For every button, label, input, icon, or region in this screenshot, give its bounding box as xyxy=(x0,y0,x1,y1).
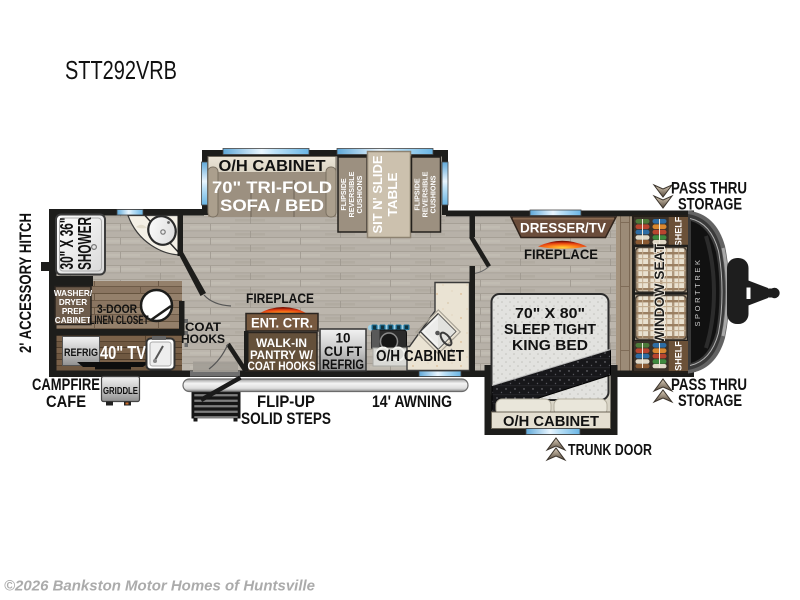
svg-text:CUSHIONS: CUSHIONS xyxy=(355,175,364,213)
svg-text:SOLID STEPS: SOLID STEPS xyxy=(241,410,331,428)
svg-text:DRESSER/TV: DRESSER/TV xyxy=(520,220,607,236)
svg-text:SPORTTREK: SPORTTREK xyxy=(693,257,702,326)
svg-text:SHELF: SHELF xyxy=(674,341,684,371)
svg-text:SHOWER: SHOWER xyxy=(74,217,95,270)
svg-text:TABLE: TABLE xyxy=(385,172,400,216)
svg-text:LINEN CLOSET: LINEN CLOSET xyxy=(90,315,149,327)
svg-text:CAFE: CAFE xyxy=(46,393,86,411)
svg-text:SOFA / BED: SOFA / BED xyxy=(220,196,324,215)
svg-text:TRUNK DOOR: TRUNK DOOR xyxy=(568,442,652,459)
svg-text:CUSHIONS: CUSHIONS xyxy=(429,175,438,213)
svg-text:©2026 Bankston Motor Homes of: ©2026 Bankston Motor Homes of Huntsville xyxy=(4,579,315,595)
svg-text:WINDOW SEAT: WINDOW SEAT xyxy=(652,243,667,344)
svg-text:ENT. CTR.: ENT. CTR. xyxy=(251,315,313,331)
svg-text:70" X 80": 70" X 80" xyxy=(515,305,585,322)
svg-text:STORAGE: STORAGE xyxy=(678,196,742,214)
svg-text:FLIP-UP: FLIP-UP xyxy=(257,393,315,411)
svg-text:STORAGE: STORAGE xyxy=(678,392,742,410)
svg-text:40" TV: 40" TV xyxy=(100,342,147,363)
svg-text:KING BED: KING BED xyxy=(512,337,588,354)
svg-text:PREP: PREP xyxy=(62,307,85,316)
svg-text:70" TRI-FOLD: 70" TRI-FOLD xyxy=(212,178,332,197)
svg-text:WALK-IN: WALK-IN xyxy=(256,338,307,350)
svg-text:REFRIG: REFRIG xyxy=(322,357,364,372)
svg-text:SLEEP TIGHT: SLEEP TIGHT xyxy=(504,321,596,338)
svg-text:GRIDDLE: GRIDDLE xyxy=(103,385,138,397)
svg-text:SIT N' SLIDE: SIT N' SLIDE xyxy=(370,155,385,233)
svg-text:FIREPLACE: FIREPLACE xyxy=(246,291,314,306)
svg-text:HOOKS: HOOKS xyxy=(181,332,225,346)
svg-text:14' AWNING: 14' AWNING xyxy=(372,393,452,411)
svg-text:CABINET: CABINET xyxy=(55,316,91,325)
svg-text:COAT HOOKS: COAT HOOKS xyxy=(248,361,316,373)
svg-text:REFRIG: REFRIG xyxy=(64,347,98,359)
svg-text:2' ACCESSORY HITCH: 2' ACCESSORY HITCH xyxy=(17,213,35,353)
svg-text:O/H CABINET: O/H CABINET xyxy=(503,414,599,430)
svg-text:O/H CABINET: O/H CABINET xyxy=(376,348,464,365)
svg-text:SHELF: SHELF xyxy=(674,216,684,246)
svg-text:CAMPFIRE: CAMPFIRE xyxy=(32,376,100,394)
svg-text:STT292VRB: STT292VRB xyxy=(65,55,177,85)
svg-text:DRYER: DRYER xyxy=(59,298,87,307)
svg-text:FIREPLACE: FIREPLACE xyxy=(524,247,598,262)
svg-text:WASHER/: WASHER/ xyxy=(54,289,93,298)
